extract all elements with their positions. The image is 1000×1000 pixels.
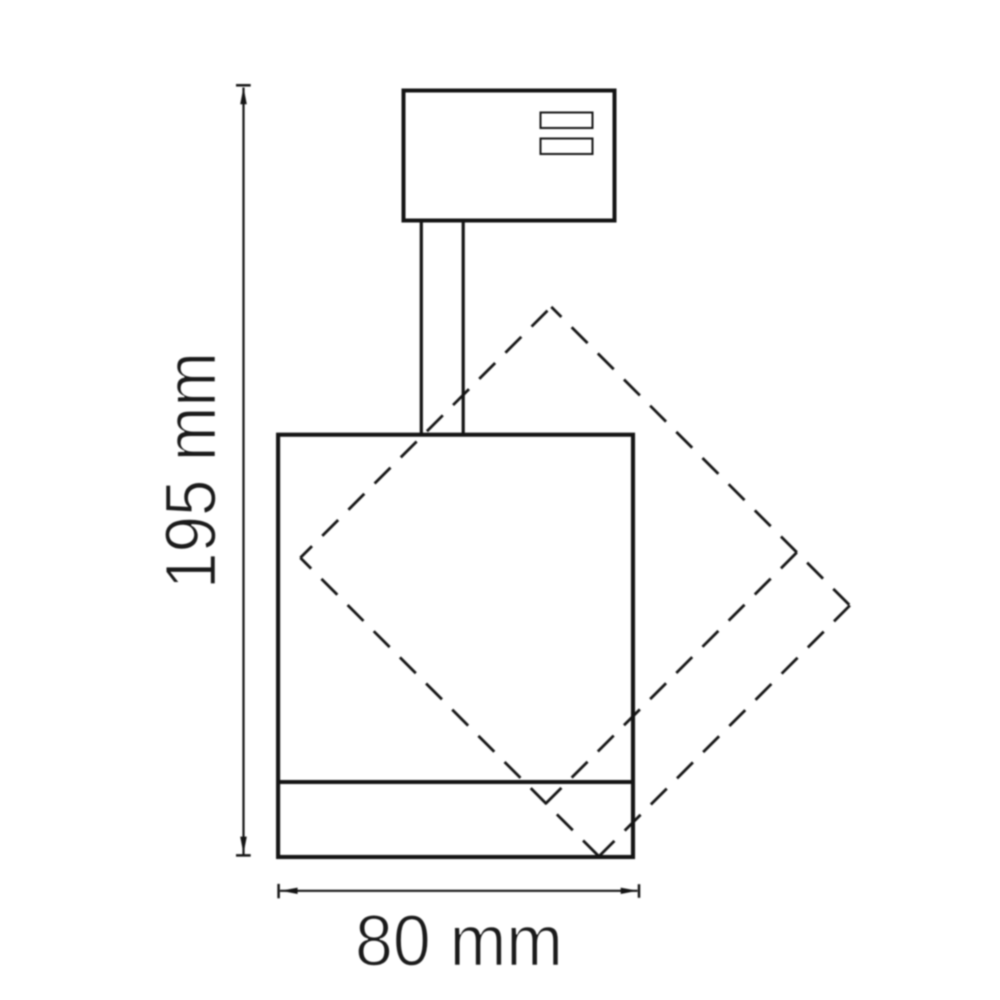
svg-text:195 mm: 195 mm: [152, 352, 232, 589]
svg-text:80 mm: 80 mm: [355, 902, 563, 982]
